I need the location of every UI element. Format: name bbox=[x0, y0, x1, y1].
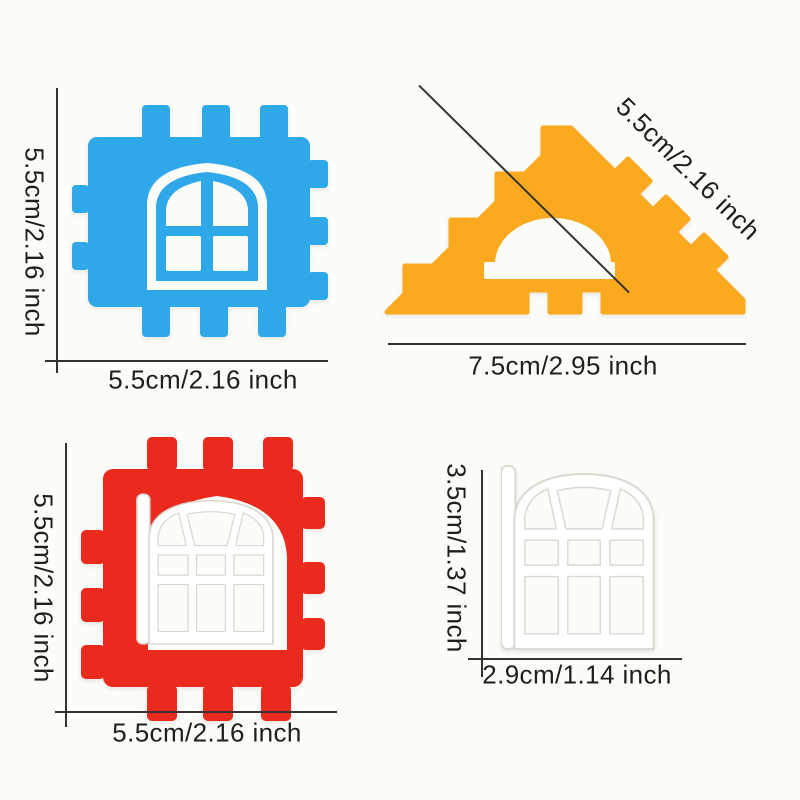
blue-height-line bbox=[56, 88, 58, 373]
white-window-shape bbox=[501, 462, 668, 653]
blue-width-line bbox=[45, 360, 328, 362]
red-height-line bbox=[65, 443, 67, 727]
window-width-label: 2.9cm/1.14 inch bbox=[482, 660, 672, 691]
red-block-shape bbox=[63, 433, 335, 725]
product-dimension-diagram: 5.5cm/2.16 inch 5.5cm/2.16 inch 5.5cm/2.… bbox=[0, 0, 800, 800]
red-height-label: 5.5cm/2.16 inch bbox=[28, 493, 59, 683]
orange-triangle-shape bbox=[381, 116, 749, 321]
red-width-line bbox=[55, 711, 337, 713]
red-width-label: 5.5cm/2.16 inch bbox=[112, 718, 302, 749]
blue-height-label: 5.5cm/2.16 inch bbox=[19, 147, 50, 337]
blue-width-label: 5.5cm/2.16 inch bbox=[108, 365, 298, 396]
orange-width-label: 7.5cm/2.95 inch bbox=[468, 351, 658, 382]
window-height-label: 3.5cm/1.37 inch bbox=[441, 463, 472, 653]
window-height-line bbox=[481, 470, 483, 677]
blue-block-shape bbox=[69, 100, 331, 340]
orange-width-line bbox=[388, 343, 746, 345]
